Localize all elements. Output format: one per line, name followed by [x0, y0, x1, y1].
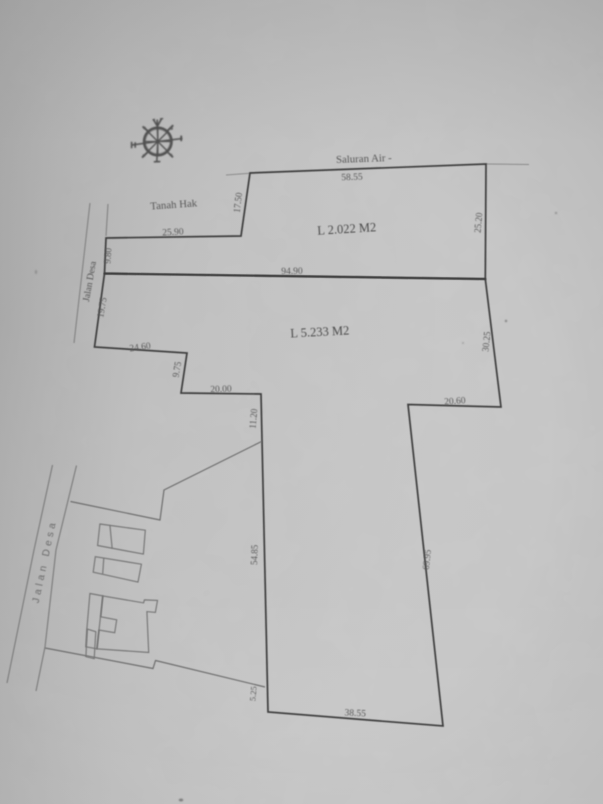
svg-text:25.20: 25.20	[473, 212, 485, 234]
svg-text:9.80: 9.80	[102, 247, 113, 264]
svg-text:5.25: 5.25	[247, 686, 258, 702]
svg-text:20.00: 20.00	[210, 385, 232, 396]
svg-text:20.60: 20.60	[444, 396, 466, 407]
svg-text:11.20: 11.20	[248, 408, 260, 429]
svg-text:54.85: 54.85	[249, 544, 260, 565]
svg-text:38.55: 38.55	[344, 708, 366, 719]
svg-text:Saluran Air -: Saluran Air -	[336, 152, 393, 166]
svg-text:25.90: 25.90	[162, 227, 184, 238]
svg-text:58.55: 58.55	[341, 173, 363, 184]
svg-text:94.90: 94.90	[281, 267, 303, 277]
